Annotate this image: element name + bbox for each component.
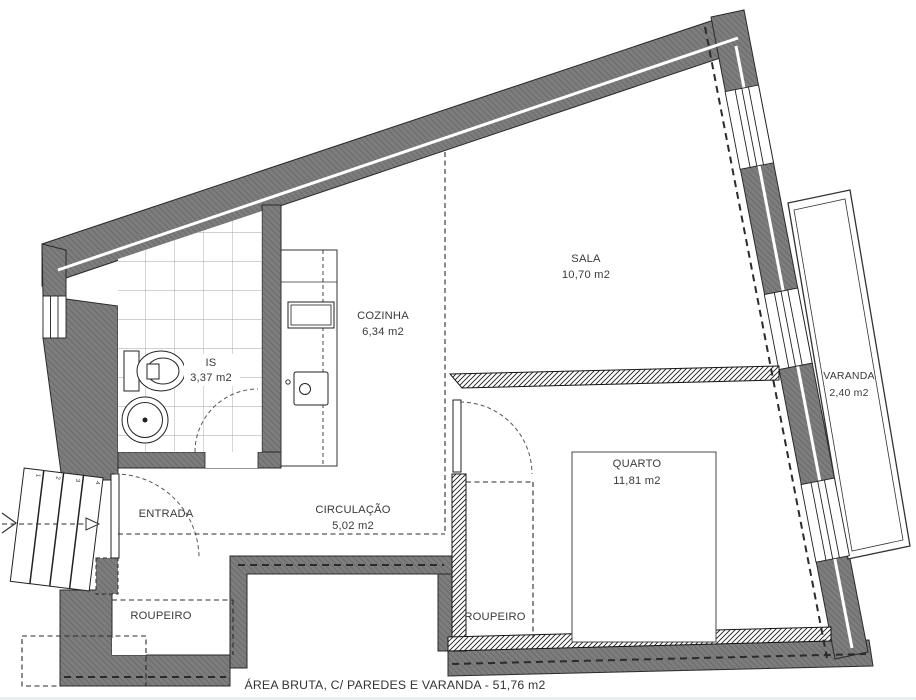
label-roupeiro-quarto: ROUPEIRO xyxy=(464,611,525,623)
is-door-opening xyxy=(205,452,258,468)
quarto-door-leaf xyxy=(453,400,461,472)
label-is: IS xyxy=(206,357,217,369)
wall-quarto-west xyxy=(452,474,466,651)
wall-circulacao-south xyxy=(230,556,452,668)
quarto-door-swing xyxy=(460,402,532,474)
label-is-area: 3,37 m2 xyxy=(190,372,232,384)
label-cozinha: COZINHA xyxy=(357,310,409,322)
label-cozinha-area: 6,34 m2 xyxy=(362,326,404,338)
toilet xyxy=(124,351,185,391)
section-arrow-icon xyxy=(2,513,16,533)
label-roupeiro-hall: ROUPEIRO xyxy=(130,610,191,622)
kitchen xyxy=(281,250,337,466)
label-varanda: VARANDA xyxy=(823,370,874,382)
wall-is-cozinha xyxy=(262,205,281,468)
wall-top-stripe xyxy=(58,38,738,270)
cooktop xyxy=(288,302,334,328)
window-east-1 xyxy=(725,85,773,169)
label-sala-area: 10,70 m2 xyxy=(562,269,610,281)
wall-quarto-north xyxy=(450,366,779,388)
label-quarto: QUARTO xyxy=(613,458,662,470)
window-west xyxy=(43,296,66,338)
floor-plan-svg: 1 2 3 4 SALA 10,70 m2 COZINHA 6,34 m2 IS… xyxy=(0,0,916,700)
stairs: 1 2 3 4 xyxy=(10,468,103,591)
wall-top xyxy=(42,10,744,286)
wall-west-stub xyxy=(42,244,66,297)
label-circulacao-area: 5,02 m2 xyxy=(332,520,374,532)
label-circulacao: CIRCULAÇÃO xyxy=(315,503,390,516)
plan-caption: ÁREA BRUTA, C/ PAREDES E VARANDA - 51,76… xyxy=(244,677,545,692)
label-quarto-area: 11,81 m2 xyxy=(613,475,660,487)
floor-plan-page: 1 2 3 4 SALA 10,70 m2 COZINHA 6,34 m2 IS… xyxy=(0,0,916,700)
wall-entry-stub xyxy=(96,558,118,594)
southwest-notch xyxy=(112,638,146,655)
label-varanda-area: 2,40 m2 xyxy=(829,387,868,399)
washbasin xyxy=(122,397,168,443)
label-sala: SALA xyxy=(571,253,601,265)
entrada-door-leaf xyxy=(111,474,119,558)
label-entrada: ENTRADA xyxy=(139,508,194,520)
